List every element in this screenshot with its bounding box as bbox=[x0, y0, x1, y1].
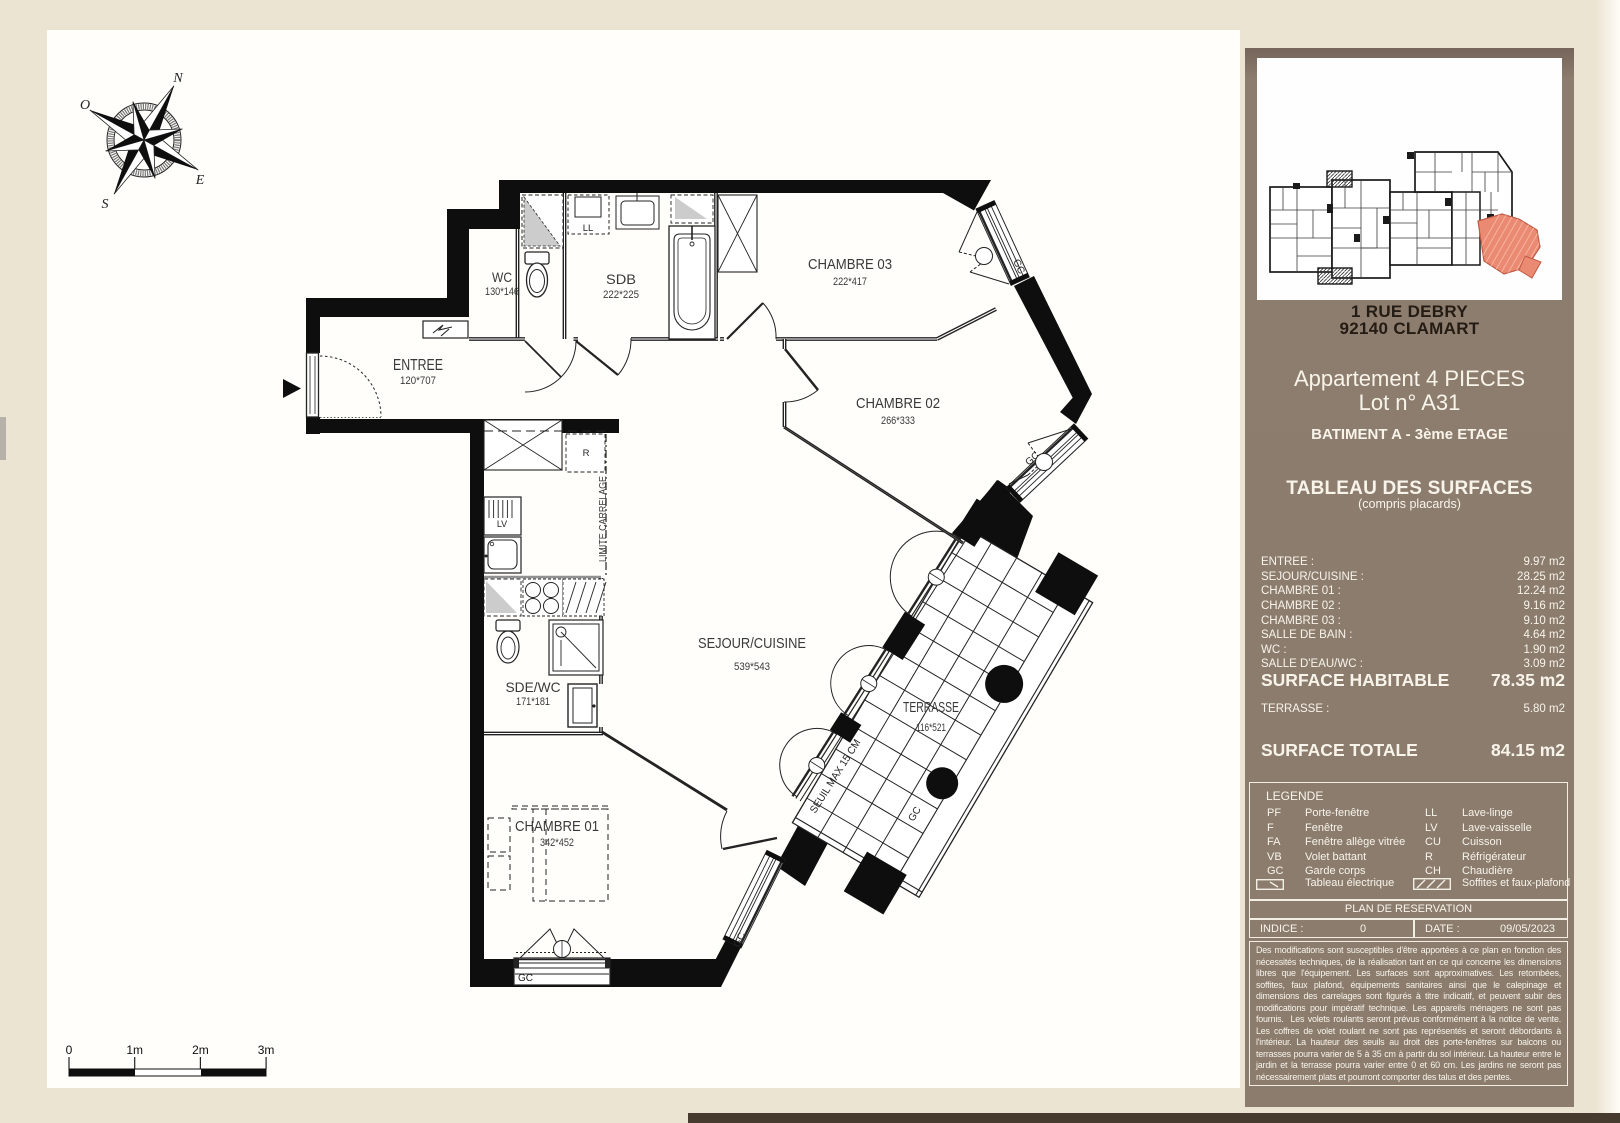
svg-text:2m: 2m bbox=[192, 1043, 209, 1057]
svg-text:0: 0 bbox=[66, 1043, 73, 1057]
svg-text:222*417: 222*417 bbox=[833, 276, 867, 288]
svg-text:SEJOUR/CUISINE: SEJOUR/CUISINE bbox=[698, 635, 806, 652]
svg-text:171*181: 171*181 bbox=[516, 696, 550, 708]
svg-text:GC: GC bbox=[518, 973, 533, 984]
svg-text:E: E bbox=[195, 173, 205, 188]
svg-text:SDB: SDB bbox=[606, 271, 636, 287]
svg-text:TERRASSE: TERRASSE bbox=[903, 700, 959, 716]
svg-text:116*521: 116*521 bbox=[916, 722, 946, 734]
svg-text:N: N bbox=[172, 71, 183, 86]
svg-text:LL: LL bbox=[583, 223, 594, 234]
svg-text:120*707: 120*707 bbox=[400, 375, 436, 387]
svg-text:342*452: 342*452 bbox=[540, 837, 574, 849]
svg-text:CHAMBRE 03: CHAMBRE 03 bbox=[808, 256, 892, 273]
svg-text:LIMITE CARRELAGE: LIMITE CARRELAGE bbox=[597, 476, 609, 562]
svg-text:O: O bbox=[80, 98, 90, 113]
svg-text:S: S bbox=[102, 197, 109, 212]
svg-text:ENTREE: ENTREE bbox=[393, 357, 443, 374]
svg-text:CHAMBRE 01: CHAMBRE 01 bbox=[515, 818, 599, 835]
svg-text:539*543: 539*543 bbox=[734, 661, 770, 673]
svg-text:CHAMBRE 02: CHAMBRE 02 bbox=[856, 395, 940, 412]
svg-text:266*333: 266*333 bbox=[881, 415, 915, 427]
svg-text:R: R bbox=[583, 448, 590, 459]
svg-text:1m: 1m bbox=[126, 1043, 143, 1057]
svg-text:222*225: 222*225 bbox=[603, 289, 639, 301]
svg-text:3m: 3m bbox=[258, 1043, 275, 1057]
svg-text:SDE/WC: SDE/WC bbox=[506, 679, 561, 695]
svg-text:130*146: 130*146 bbox=[485, 286, 519, 298]
svg-text:WC: WC bbox=[492, 269, 512, 285]
svg-text:LV: LV bbox=[497, 519, 507, 529]
